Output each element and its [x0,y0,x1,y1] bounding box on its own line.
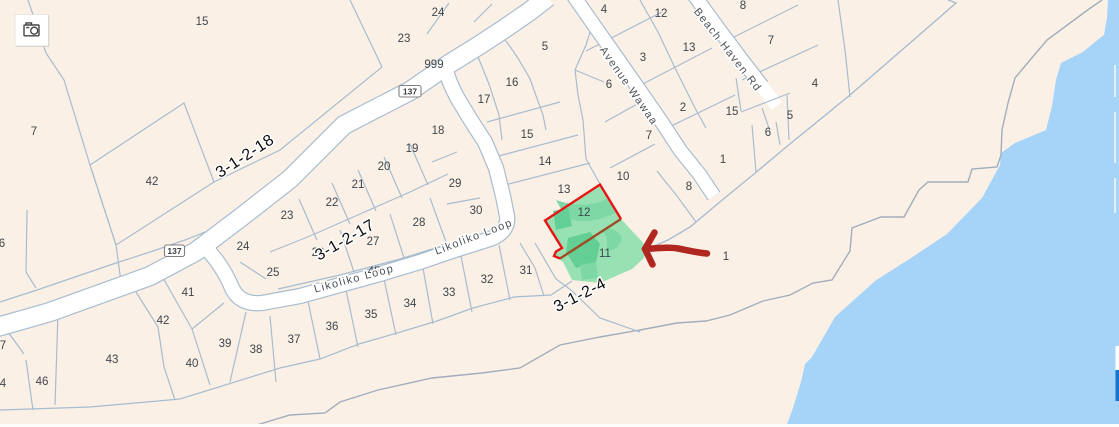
svg-text:21: 21 [352,179,365,191]
svg-text:28: 28 [413,217,426,229]
svg-text:29: 29 [449,178,462,190]
svg-text:7: 7 [646,130,652,142]
svg-text:4: 4 [0,378,7,390]
svg-text:25: 25 [267,267,280,279]
svg-text:42: 42 [146,176,159,188]
svg-text:31: 31 [520,265,533,277]
svg-text:137: 137 [403,87,417,97]
svg-text:8: 8 [686,181,692,193]
svg-text:38: 38 [250,344,263,356]
svg-text:5: 5 [787,110,793,122]
svg-text:15: 15 [521,129,534,141]
svg-text:2: 2 [680,102,686,114]
svg-text:15: 15 [196,16,209,28]
svg-text:43: 43 [106,354,119,366]
svg-text:12: 12 [655,8,668,20]
svg-text:27: 27 [367,236,380,248]
svg-text:36: 36 [326,321,339,333]
svg-text:39: 39 [219,338,232,350]
svg-text:18: 18 [432,125,445,137]
svg-text:35: 35 [365,309,378,321]
svg-text:11: 11 [599,248,611,260]
svg-text:24: 24 [237,241,250,253]
svg-text:13: 13 [683,42,696,54]
svg-text:20: 20 [378,161,391,173]
svg-text:7: 7 [31,126,37,138]
svg-text:16: 16 [506,77,519,89]
svg-text:7: 7 [0,340,6,352]
svg-text:23: 23 [281,210,294,222]
svg-text:6: 6 [0,238,5,250]
svg-text:5: 5 [542,41,548,53]
svg-text:41: 41 [182,287,195,299]
svg-text:137: 137 [167,246,181,256]
svg-text:32: 32 [481,274,494,286]
svg-text:33: 33 [443,287,456,299]
svg-text:30: 30 [470,205,483,217]
svg-text:13: 13 [558,184,571,196]
svg-text:42: 42 [157,315,170,327]
svg-text:22: 22 [326,197,339,209]
svg-text:4: 4 [601,4,608,16]
svg-text:14: 14 [539,156,552,168]
svg-text:19: 19 [406,143,419,155]
svg-text:15: 15 [726,106,739,118]
svg-text:40: 40 [186,358,199,370]
svg-text:4: 4 [812,78,819,90]
svg-text:37: 37 [288,334,301,346]
svg-text:1: 1 [723,251,729,263]
svg-text:6: 6 [765,127,771,139]
svg-text:1: 1 [720,154,726,166]
svg-text:34: 34 [404,298,417,310]
svg-text:46: 46 [36,376,49,388]
svg-text:24: 24 [432,7,445,19]
svg-text:999: 999 [424,59,443,71]
svg-text:7: 7 [768,35,774,47]
svg-text:8: 8 [740,0,746,12]
svg-text:17: 17 [478,94,491,106]
svg-text:23: 23 [398,33,411,45]
svg-text:12: 12 [578,207,591,219]
svg-text:10: 10 [617,171,630,183]
svg-text:3: 3 [640,52,646,64]
svg-text:6: 6 [606,79,612,91]
